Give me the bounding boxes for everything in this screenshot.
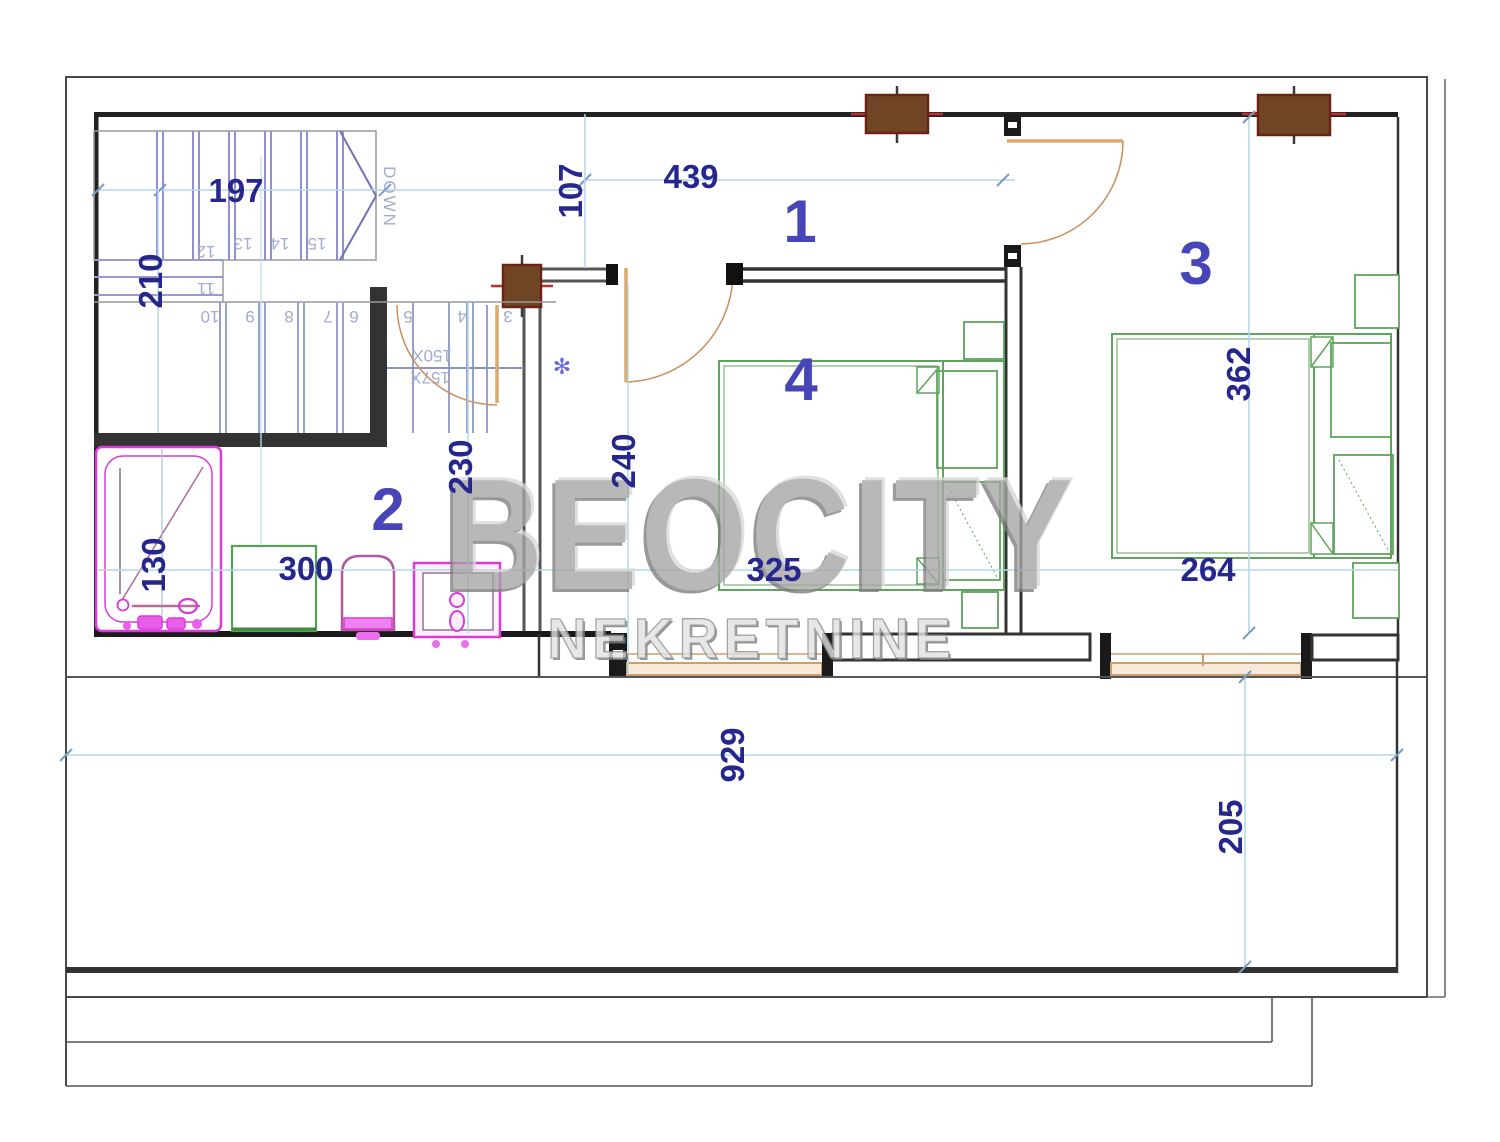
svg-text:107: 107: [552, 163, 589, 218]
svg-text:240: 240: [605, 433, 642, 488]
svg-text:7: 7: [323, 307, 332, 326]
svg-text:5: 5: [403, 307, 412, 326]
svg-text:NEKRETNINE: NEKRETNINE: [548, 607, 957, 671]
svg-text:3: 3: [1179, 230, 1212, 297]
svg-text:210: 210: [132, 253, 169, 308]
svg-text:9: 9: [245, 307, 254, 326]
svg-text:205: 205: [1212, 799, 1249, 854]
svg-text:157X: 157X: [410, 368, 450, 387]
svg-text:230: 230: [442, 439, 479, 494]
svg-text:362: 362: [1220, 346, 1257, 401]
svg-text:150X: 150X: [412, 346, 452, 365]
svg-text:2: 2: [371, 476, 404, 543]
svg-text:4: 4: [784, 346, 818, 413]
svg-text:10: 10: [201, 307, 220, 326]
svg-text:14: 14: [271, 234, 290, 253]
svg-text:BEOCITY: BEOCITY: [444, 447, 1076, 623]
svg-text:439: 439: [663, 158, 718, 195]
svg-text:929: 929: [714, 727, 751, 782]
svg-text:DOWN: DOWN: [380, 166, 399, 228]
svg-text:325: 325: [746, 551, 801, 588]
svg-text:✻: ✻: [553, 354, 571, 379]
svg-text:1: 1: [783, 188, 816, 255]
svg-text:15: 15: [308, 234, 327, 253]
svg-text:13: 13: [234, 234, 253, 253]
svg-text:11: 11: [197, 279, 215, 298]
svg-text:3: 3: [503, 307, 512, 326]
svg-text:300: 300: [278, 550, 333, 587]
svg-text:264: 264: [1180, 551, 1236, 588]
svg-text:12: 12: [197, 242, 216, 261]
svg-text:8: 8: [284, 307, 293, 326]
svg-text:197: 197: [208, 172, 263, 209]
svg-text:130: 130: [135, 537, 172, 592]
svg-text:6: 6: [349, 307, 358, 326]
svg-text:4: 4: [457, 307, 466, 326]
